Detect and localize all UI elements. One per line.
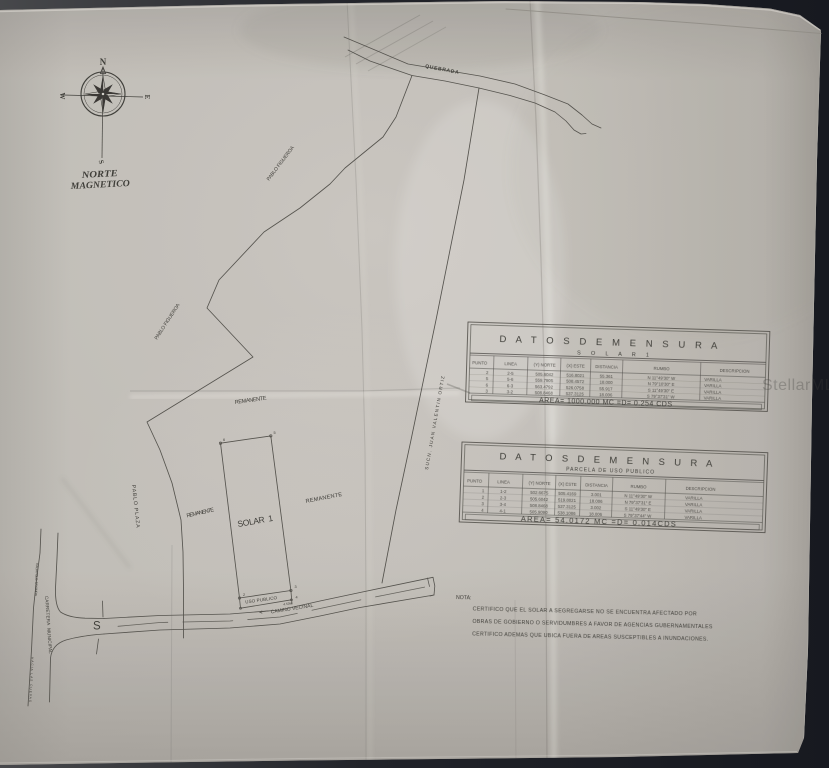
svg-text:2-5: 2-5 [507,371,514,376]
svg-text:DISTANCIA: DISTANCIA [585,482,608,488]
svg-text:(X) ESTE: (X) ESTE [567,363,585,369]
svg-text:4-1: 4-1 [499,508,506,513]
svg-text:18.000: 18.000 [600,380,614,385]
svg-text:PUNTO: PUNTO [467,478,483,484]
svg-text:E: E [143,95,151,100]
svg-text:537.3125: 537.3125 [566,391,585,397]
svg-text:505.6042: 505.6042 [530,496,549,502]
svg-text:StellarMLS: StellarMLS [762,377,829,394]
svg-text:502.6675: 502.6675 [530,490,549,496]
svg-text:W: W [58,93,66,100]
svg-text:508.4572: 508.4572 [566,379,585,385]
svg-text:NOTA:: NOTA: [456,595,472,601]
svg-text:S 11°49'30" E: S 11°49'30" E [648,387,674,393]
svg-text:508.8468: 508.8468 [530,503,549,509]
svg-text:(Y) NORTE: (Y) NORTE [529,480,551,486]
svg-text:VARILLA: VARILLA [684,515,702,521]
svg-text:505.4169: 505.4169 [558,491,577,497]
svg-text:DESCRIPCION: DESCRIPCION [720,368,750,374]
svg-text:(X) ESTE: (X) ESTE [558,481,576,487]
svg-text:3-4: 3-4 [500,502,507,507]
svg-text:2-3: 2-3 [500,495,507,500]
svg-text:516.8021: 516.8021 [566,372,585,378]
svg-text:6: 6 [223,438,225,442]
svg-text:VARILLA: VARILLA [685,508,703,514]
svg-text:559.7905: 559.7905 [535,378,554,384]
svg-text:55.917: 55.917 [599,386,613,391]
svg-text:DESCRIPCION: DESCRIPCION [686,486,716,492]
svg-text:VARILLA: VARILLA [685,495,703,501]
svg-text:N 11°49'30" W: N 11°49'30" W [624,493,653,499]
svg-text:5: 5 [274,431,276,435]
svg-text:3.001: 3.001 [591,492,603,497]
svg-text:18.006: 18.006 [589,498,603,503]
svg-text:5-6: 5-6 [507,377,514,382]
svg-text:LINEA: LINEA [504,361,517,366]
svg-text:6-3: 6-3 [507,383,514,388]
svg-text:508.8468: 508.8468 [535,390,554,396]
svg-text:519.8021: 519.8021 [558,497,577,503]
svg-text:2: 2 [243,593,245,597]
svg-text:(Y) NORTE: (Y) NORTE [534,362,556,368]
svg-text:N 79°37'31" E: N 79°37'31" E [625,500,652,506]
svg-text:RUMBO: RUMBO [630,484,647,490]
svg-text:18.006: 18.006 [599,392,613,397]
svg-text:526.0758: 526.0758 [566,385,585,391]
svg-text:N 79°10'30" E: N 79°10'30" E [648,381,675,387]
svg-text:N: N [100,57,107,67]
svg-text:55.361: 55.361 [600,373,614,378]
svg-text:VARILLA: VARILLA [685,502,703,508]
svg-text:3: 3 [295,585,297,589]
svg-text:S 79°37'31" W: S 79°37'31" W [647,394,676,400]
svg-text:3.002: 3.002 [590,505,602,510]
svg-text:VARILLA: VARILLA [704,377,722,383]
svg-text:DISTANCIA: DISTANCIA [595,364,618,370]
svg-text:1-2: 1-2 [500,489,507,494]
svg-text:LINEA: LINEA [497,479,510,484]
svg-text:505.6042: 505.6042 [535,371,554,377]
svg-text:VARILLA: VARILLA [704,395,722,401]
svg-text:VARILLA: VARILLA [704,389,722,395]
svg-text:537.3125: 537.3125 [558,504,577,510]
svg-text:S 11°49'30" E: S 11°49'30" E [625,506,651,512]
svg-text:S: S [93,621,101,633]
svg-text:3-2: 3-2 [507,389,514,394]
svg-text:PUNTO: PUNTO [472,360,488,365]
svg-text:563.4792: 563.4792 [535,384,554,390]
svg-text:RUMBO: RUMBO [654,366,671,372]
svg-text:N 11°49'30" W: N 11°49'30" W [647,375,676,381]
svg-text:4: 4 [296,596,298,600]
svg-text:VARILLA: VARILLA [704,383,722,389]
